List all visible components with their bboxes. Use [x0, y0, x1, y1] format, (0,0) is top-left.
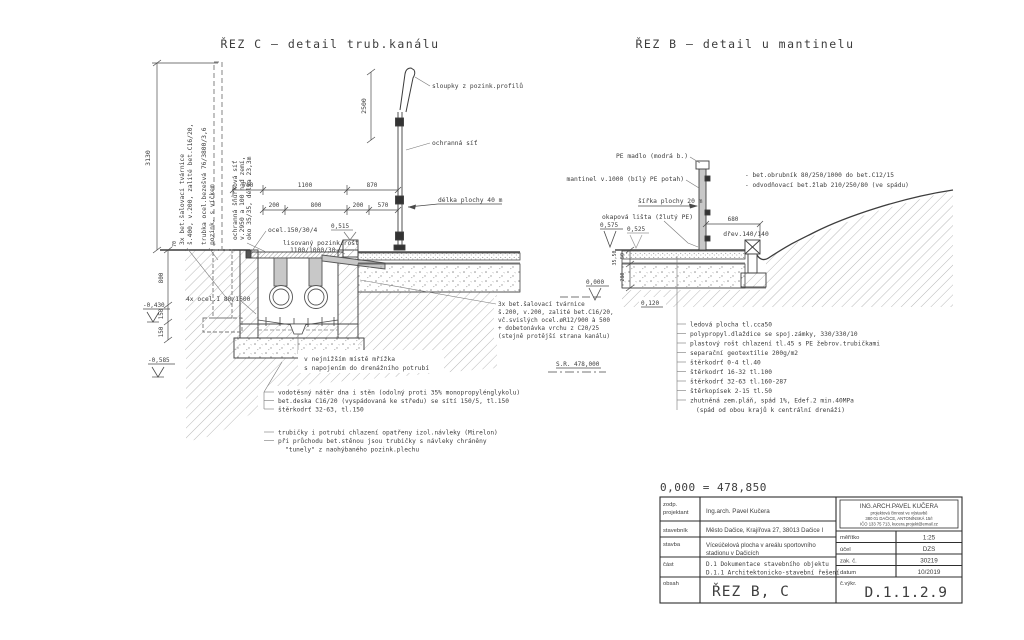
label-ochranna-sit: ochranná síť	[432, 138, 478, 147]
row-obsah-value: ŘEZ B, C	[712, 583, 790, 600]
post-bracket	[400, 68, 415, 112]
elev-0430-label: -0,430	[143, 302, 165, 309]
row-stavba-value-2: stadionu v Dačicích	[706, 550, 759, 557]
dim-left-chain	[164, 247, 172, 343]
note1-line3: štěrkodrť 32-63, tl.150	[278, 405, 364, 414]
rink-layers-c	[358, 252, 520, 292]
elev-0585-label: -0,585	[148, 357, 170, 364]
note1-line2: bet.deska C16/20 (vyspádovaná ke středu)…	[278, 397, 509, 405]
dim-870: 870	[367, 182, 378, 189]
label-pe-madlo: PE madlo (modrá b.)	[616, 152, 688, 160]
tv-line4: + dobetonávka vrchu z C20/25	[498, 325, 600, 332]
section-c: ŘEZ C – detail trub.kanálu	[143, 36, 614, 454]
firm-box: ING.ARCH.PAVEL KUČERA projektová činnost…	[860, 503, 939, 527]
label-sirka-plochy: šířka plochy 20 m	[638, 197, 703, 209]
elev-0515: 0,515	[331, 223, 356, 240]
note2-line2: při průchodu bet.stěnou jsou trubičky s …	[278, 437, 487, 445]
elev-0515-label: 0,515	[331, 223, 349, 230]
layer-item: štěrkodrť 16-32 tl.100	[690, 367, 772, 376]
firm-line-2: projektová činnost ve výstavbě	[870, 511, 928, 516]
layer-item: polypropyl.dlaždice se spoj.zámky, 330/3…	[690, 330, 858, 338]
mantinel-board	[696, 161, 710, 250]
soil-bank	[622, 190, 953, 308]
note2-line3: "tunely" z naohýbaného pozink.plechu	[285, 446, 419, 454]
label-ocel150: ocel.150/30/4	[268, 227, 317, 234]
dim-50: 50	[620, 253, 626, 259]
dim-800h: 800	[311, 202, 322, 209]
wood-post	[741, 240, 766, 287]
elev-0575-label: 0,575	[600, 222, 618, 229]
dim-150b: 150	[158, 326, 165, 337]
dim-570: 570	[378, 202, 389, 209]
row-stavebnik-value: Město Dačice, Krajířova 27, 38013 Dačice…	[706, 527, 823, 534]
dim-70: 70	[172, 241, 178, 247]
layer-item: štěrkopísek 2-15 tl.50	[690, 387, 772, 395]
layer-item: (spád od obou krajů k centrální drenáži)	[696, 406, 845, 414]
row-datum-label: datum	[840, 570, 856, 576]
label-sirka-text: šířka plochy 20 m	[638, 197, 703, 205]
row-zak-value: 30219	[920, 558, 938, 565]
dim-680-label: 680	[728, 216, 739, 223]
section-c-title: ŘEZ C – detail trub.kanálu	[220, 36, 439, 51]
dim-150a: 150	[158, 308, 165, 319]
layer-item: ledová plocha tl.cca50	[690, 321, 772, 329]
note1-line1: vodotěsný nátěr dna i stěn (odolný proti…	[278, 389, 520, 397]
layer-item: separační geotextílie 200g/m2	[690, 349, 798, 357]
label-tvarnice-a: 3x bet.šalovací tvárnice	[178, 154, 186, 245]
label-4x-ocel: 4x ocel.I 80/1600	[186, 296, 251, 303]
title-block: 0,000 = 478,850 zodp. projektant Ing.arc…	[660, 481, 962, 603]
layer-item: zhutněná zem.pláň, spád 1%, Edef.2 min.4…	[690, 397, 854, 405]
mrizka-line2: s napojením do drenážního potrubí	[304, 364, 429, 372]
channel-walls	[234, 250, 364, 358]
elev-0525-label: 0,525	[627, 226, 645, 233]
row-datum-value: 10/2019	[918, 569, 941, 576]
row-cvykr-label: č.výkr.	[840, 581, 857, 587]
label-mantinel: mantinel v.1000 (bílý PE potah)	[566, 175, 684, 183]
label-delka-plochy: délka plochy 40 m	[408, 196, 503, 210]
row-cast-value-1: D.1 Dokumentace stavebního objektu	[706, 561, 829, 568]
layer-item: plastový rošt chlazení tl.45 s PE žebrov…	[690, 340, 880, 348]
label-rost-2: 1100/1000/30	[290, 247, 336, 254]
layer-item: štěrkodrť 0-4 tl.40	[690, 358, 761, 367]
elev-0430: -0,430	[143, 302, 170, 322]
dim-700: 700	[243, 182, 254, 189]
elev-0585: -0,585	[148, 357, 175, 377]
row-stavebnik-label: stavebník	[663, 528, 688, 534]
elev-0575: 0,575	[600, 222, 623, 247]
elev-0120-label: 0,120	[641, 300, 659, 307]
row-zak-label: zak. č.	[840, 559, 857, 565]
firm-name: ING.ARCH.PAVEL KUČERA	[860, 503, 939, 510]
row-zodp-label-1: zodp.	[663, 502, 678, 508]
dim-3130-label: 3130	[144, 150, 152, 166]
dim-200a: 200	[269, 202, 280, 209]
row-ucel-value: DZS	[923, 546, 936, 553]
row-zodp-value: Ing.arch. Pavel Kučera	[706, 508, 770, 515]
row-cvykr-value: D.1.1.2.9	[864, 585, 947, 601]
dim-800v: 800	[158, 272, 165, 283]
firm-line-4: IČO 133 75 713, kucera.projekt@email.cz	[860, 522, 938, 527]
row-stavba-value-1: Víceúčelová plocha v areálu sportovního	[706, 542, 816, 549]
elev-0000-label: 0,000	[586, 279, 604, 286]
elev-0525: 0,525	[627, 226, 649, 248]
datum-equation: 0,000 = 478,850	[660, 481, 767, 494]
tv-line5: (stejně protější strana kanálu)	[498, 333, 610, 340]
label-delka-plochy-text: délka plochy 40 m	[438, 196, 503, 204]
dim-1100: 1100	[298, 182, 313, 189]
layer-item: štěrkodrť 32-63 tl.160-287	[690, 377, 787, 386]
datum-sr: S.R. 478,000	[548, 361, 606, 372]
dim-200b: 200	[353, 202, 364, 209]
dim-2500-label: 2500	[360, 98, 368, 114]
tv-line3: vč.svislých ocel.øR12/900 à 500	[498, 317, 610, 324]
note2-line1: trubičky i potrubí chlazení opatřeny izo…	[278, 429, 498, 437]
elev-0000: 0,000	[560, 279, 609, 300]
label-trubka-b: pozink. s víčkem	[208, 184, 216, 245]
row-cast-value-2: D.1.1 Architektonicko-stavební řešení	[706, 570, 840, 577]
row-stavba-label: stavba	[663, 542, 681, 548]
tv-line2: š.200, v.200, zalité bet.C16/20,	[498, 309, 614, 316]
section-b-title: ŘEZ B – detail u mantinelu	[635, 36, 854, 51]
label-drev: dřev.140/140	[723, 230, 769, 238]
drawing-canvas: ŘEZ C – detail trub.kanálu	[0, 0, 1024, 640]
label-sit-b: v.2950 a 100 nad zemí,	[238, 157, 246, 240]
row-meritko-label: měřítko	[840, 535, 859, 541]
drawing-sheet: ŘEZ C – detail trub.kanálu	[0, 0, 1024, 640]
row-cast-label: část	[663, 562, 674, 568]
label-tvarnice-b: š.400, v.200, zalité bet.C16/20,	[186, 124, 194, 245]
row-ucel-label: účel	[840, 547, 851, 553]
label-sloupky: sloupky z pozink.profilů	[432, 82, 523, 90]
section-b: ŘEZ B – detail u mantinelu dřev.140/140	[548, 36, 953, 414]
dim-3550: 35,50	[612, 250, 618, 265]
fence-post	[394, 112, 405, 250]
note-zlab: - odvodňovací bet.žlab 210/250/80 (ve sp…	[745, 181, 909, 189]
label-okapova: okapová lišta (žlutý PE)	[602, 213, 693, 221]
row-zodp-label-2: projektant	[663, 510, 689, 516]
tv-line1: 3x bet.šalovací tvárnice	[498, 301, 585, 308]
label-rost-1: lisovaný pozink.rošt	[283, 239, 359, 247]
row-meritko-value: 1:25	[923, 535, 936, 542]
row-obsah-label: obsah	[663, 581, 679, 587]
firm-line-3: 380 01 DAČICE, ANTONÍNSKÁ 15/I	[865, 516, 932, 521]
dim-280: 280	[620, 272, 626, 281]
label-sit-a: ochranná šňůrková síť	[230, 160, 239, 240]
sr-label: S.R. 478,000	[556, 361, 600, 368]
label-trubka-a: trubka ocel.bezešvá 76/3800/3,6	[200, 127, 208, 245]
notes-list-2: trubičky i potrubí chlazení opatřeny izo…	[264, 429, 498, 454]
mrizka-line1: v nejnižším místě mřížka	[304, 355, 395, 363]
note-obrubnik: - bet.obrubník 80/250/1000 do bet.C12/15	[745, 171, 894, 179]
dim-2500	[367, 69, 375, 143]
label-sit-c: oko 35/35, délka 23,3m	[245, 156, 253, 240]
